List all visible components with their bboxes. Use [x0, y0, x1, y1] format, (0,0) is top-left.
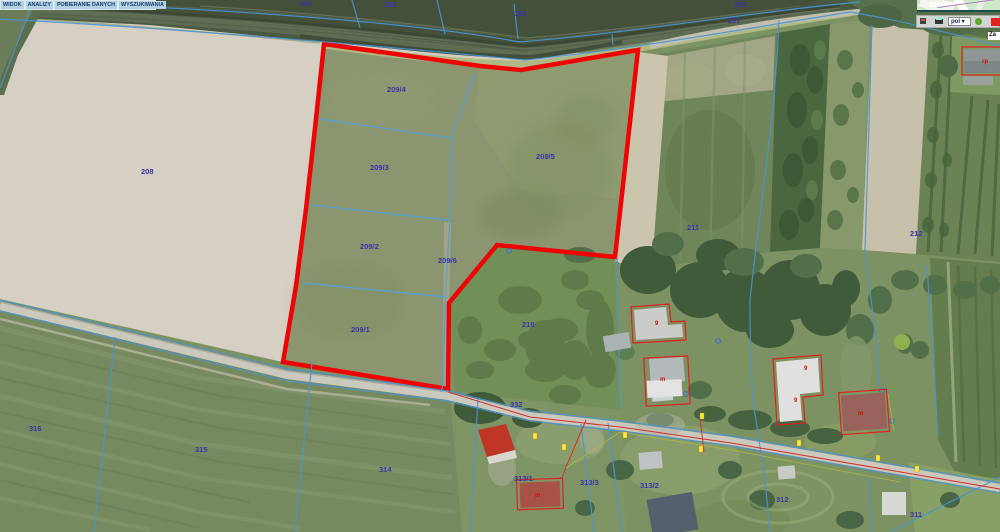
- svg-text:209/6: 209/6: [438, 256, 457, 265]
- svg-text:m: m: [660, 377, 665, 383]
- svg-text:212: 212: [910, 229, 923, 238]
- svg-text:316: 316: [29, 424, 42, 433]
- svg-text:209/5: 209/5: [536, 152, 555, 161]
- svg-text:209/3: 209/3: [370, 163, 389, 172]
- svg-text:163: 163: [384, 0, 397, 9]
- svg-text:rp: rp: [982, 59, 988, 65]
- svg-text:209/1: 209/1: [351, 325, 370, 334]
- svg-text:m: m: [858, 411, 863, 417]
- svg-text:315: 315: [195, 445, 208, 454]
- svg-text:313/1: 313/1: [514, 474, 533, 483]
- svg-text:313/3: 313/3: [580, 478, 599, 487]
- svg-text:314: 314: [379, 465, 392, 474]
- svg-text:164: 164: [299, 0, 312, 8]
- svg-text:m: m: [535, 493, 540, 499]
- svg-text:209/4: 209/4: [387, 85, 407, 94]
- svg-text:162: 162: [514, 9, 527, 18]
- svg-text:312: 312: [776, 495, 789, 504]
- svg-text:207: 207: [728, 16, 741, 25]
- svg-text:209/2: 209/2: [360, 242, 379, 251]
- svg-text:211: 211: [687, 223, 699, 232]
- svg-text:332: 332: [510, 400, 523, 409]
- svg-text:208: 208: [141, 167, 154, 176]
- svg-text:311: 311: [910, 510, 922, 519]
- svg-text:210: 210: [522, 320, 535, 329]
- svg-text:313/2: 313/2: [640, 481, 659, 490]
- svg-text:253: 253: [734, 0, 747, 9]
